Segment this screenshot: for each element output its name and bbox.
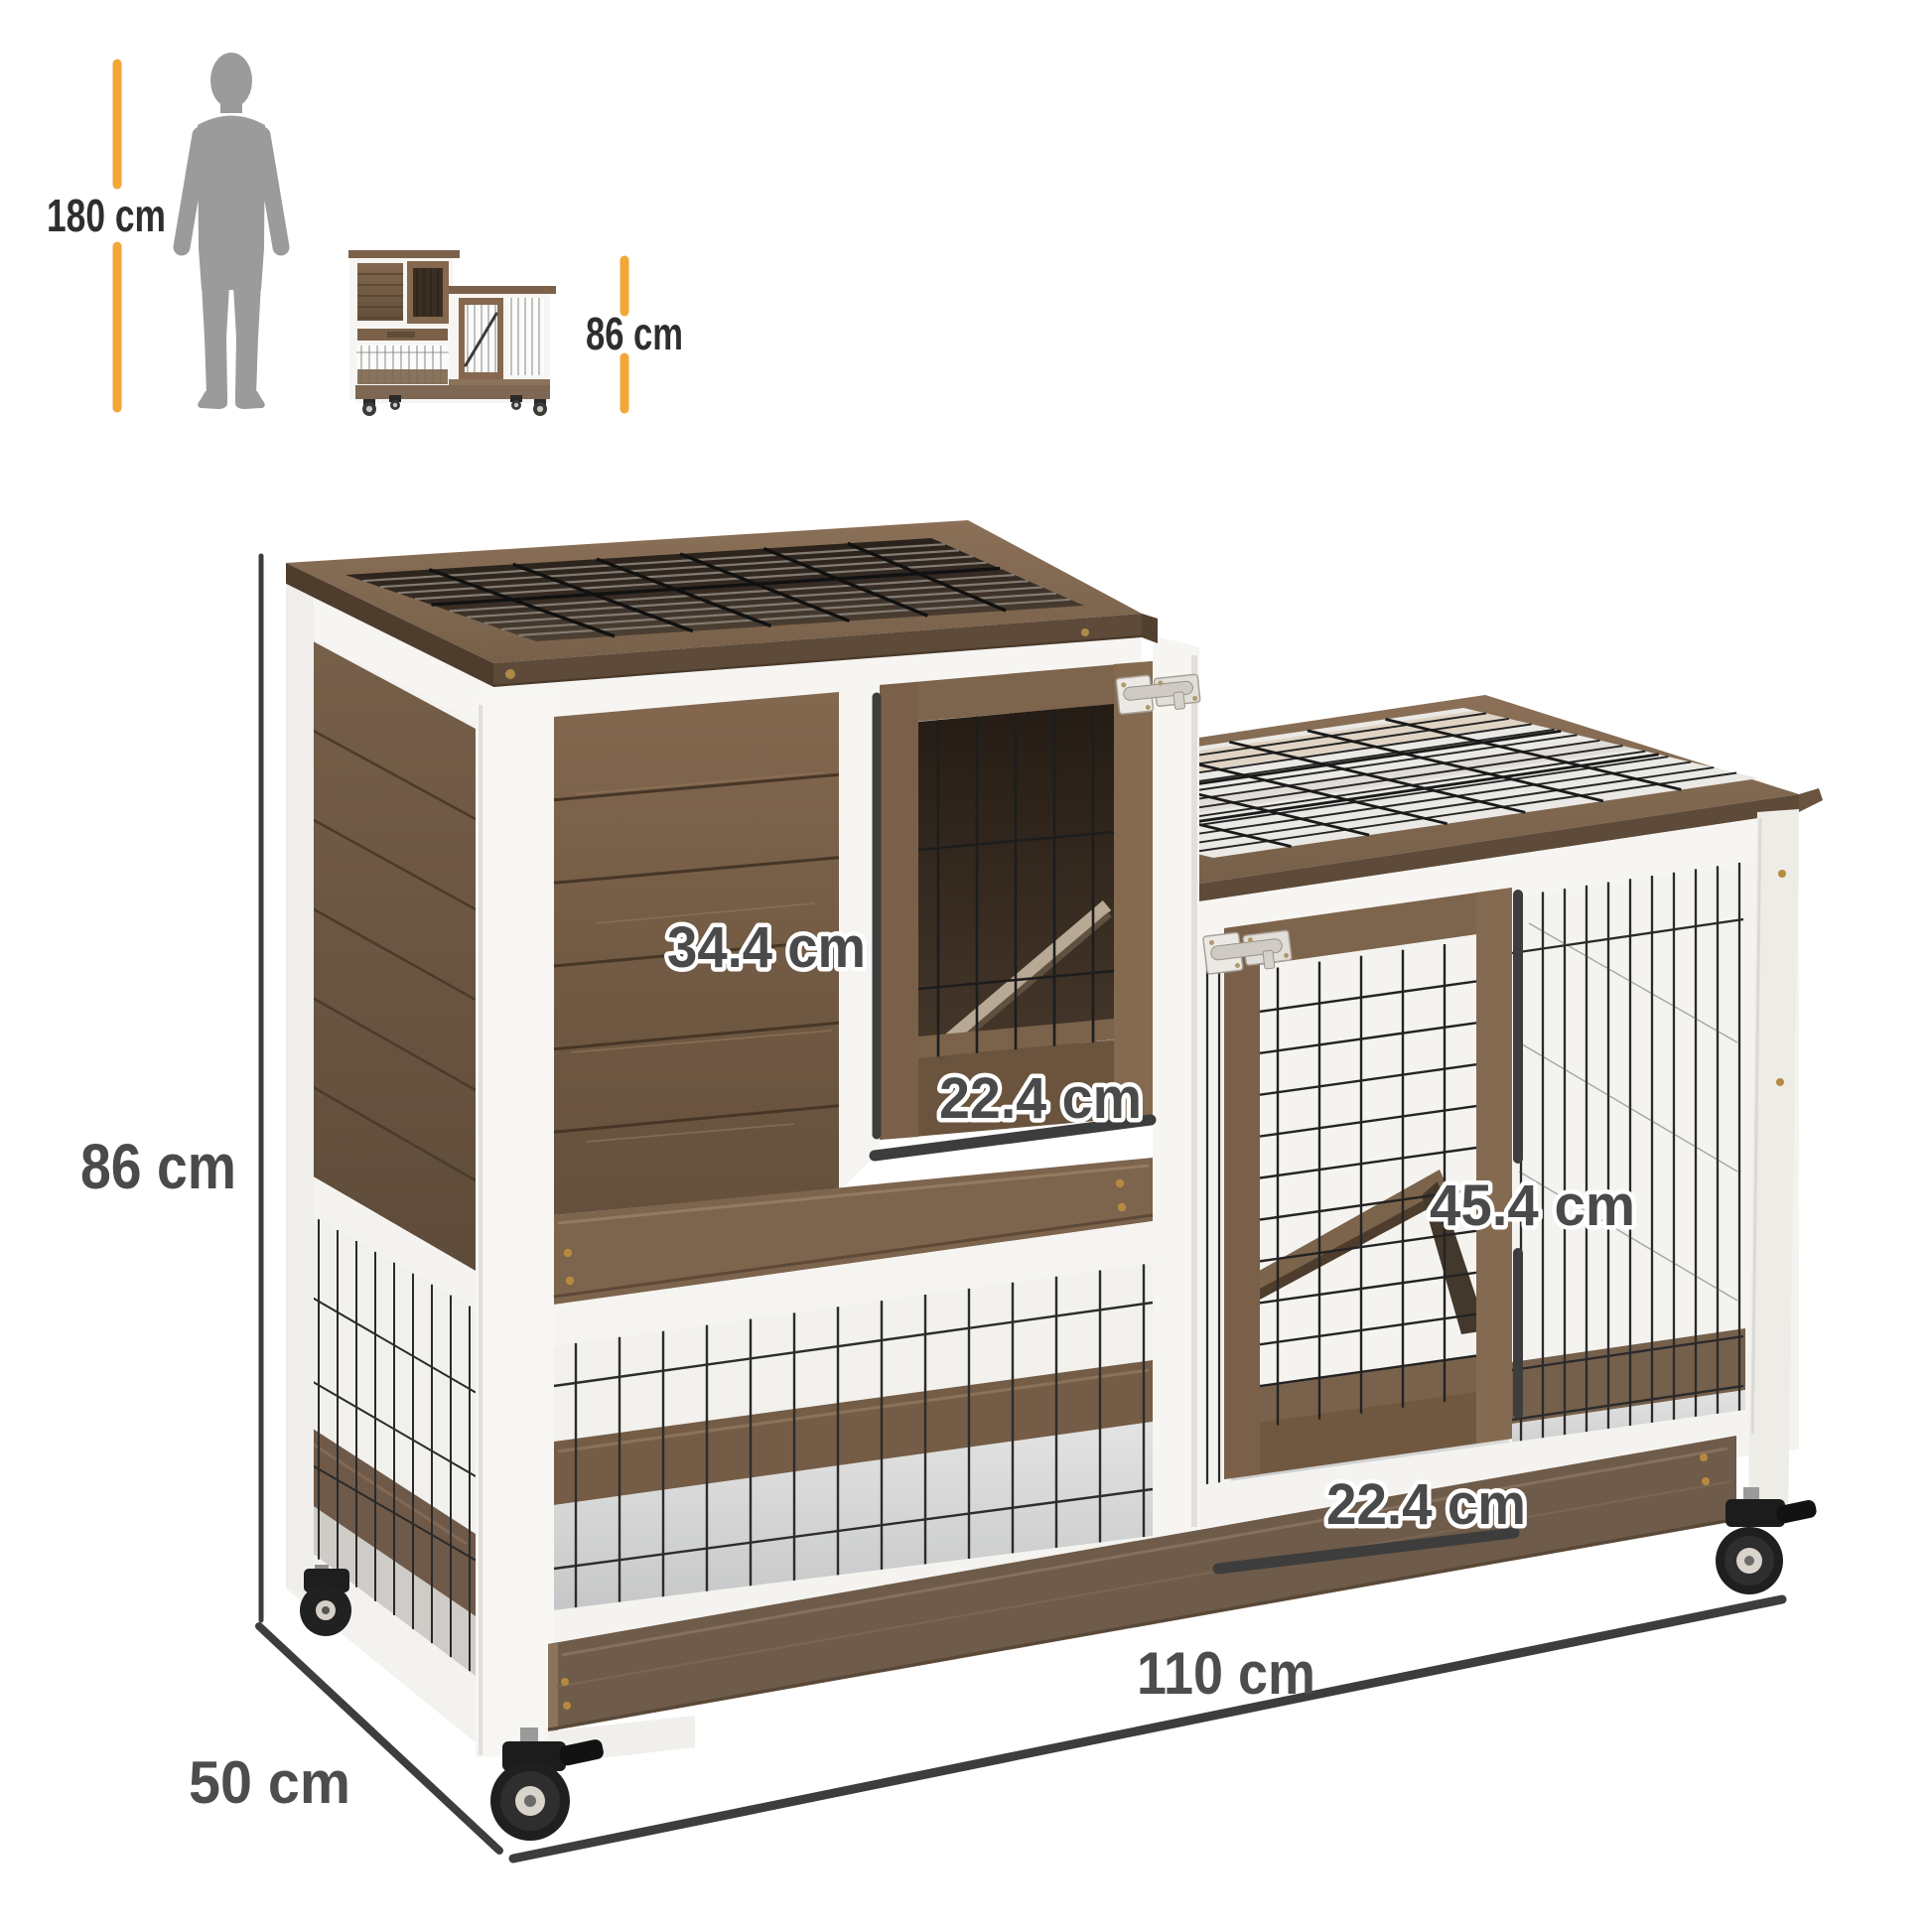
svg-text:86 cm: 86 cm <box>586 308 683 359</box>
svg-text:50 cm: 50 cm <box>189 1749 350 1816</box>
svg-text:22.4 cm: 22.4 cm <box>1326 1472 1526 1537</box>
svg-text:180 cm: 180 cm <box>47 190 166 241</box>
svg-text:86 cm: 86 cm <box>80 1131 236 1202</box>
svg-text:45.4 cm: 45.4 cm <box>1430 1173 1635 1238</box>
svg-text:34.4 cm: 34.4 cm <box>667 915 866 980</box>
svg-text:110 cm: 110 cm <box>1137 1640 1315 1707</box>
svg-text:22.4 cm: 22.4 cm <box>939 1066 1142 1131</box>
